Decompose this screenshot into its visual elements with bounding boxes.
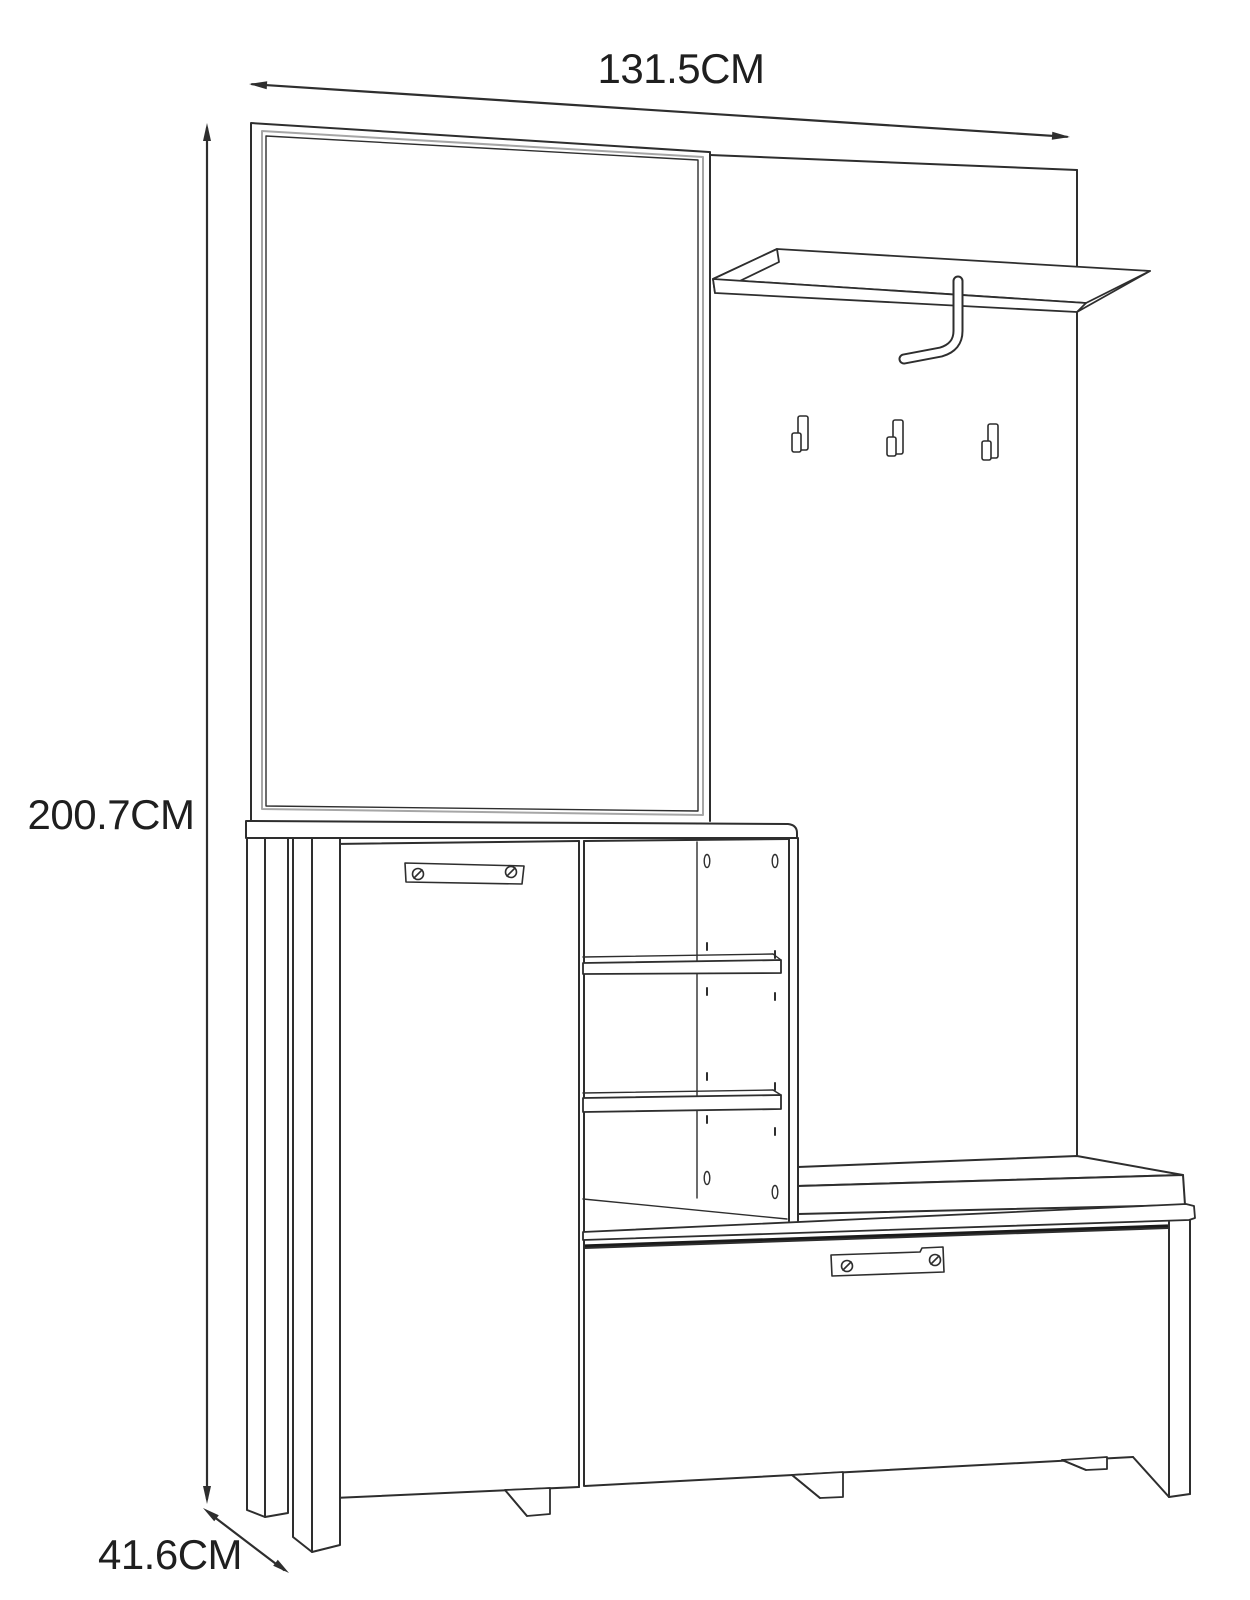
side-frame-right (1133, 1220, 1190, 1497)
compartment-shelf-lower (583, 1090, 781, 1112)
open-shelf-unit (583, 838, 798, 1221)
door-handle (405, 863, 524, 884)
wall-hook-3 (982, 424, 998, 460)
bench-seat (798, 1156, 1185, 1214)
mirror-panel (251, 123, 709, 821)
peg-holes-back (704, 855, 710, 1185)
leg-front-left (293, 838, 340, 1552)
foot-under-drawer (792, 1472, 843, 1498)
leg-back-left (247, 838, 288, 1517)
dimension-diagram: 131.5CM 200.7CM 41.6CM (0, 0, 1250, 1600)
width-dimension-label: 131.5CM (481, 48, 881, 90)
peg-holes-front (772, 855, 778, 1199)
compartment-shelf-upper (583, 954, 781, 974)
height-dimension-label: 200.7CM (0, 794, 222, 836)
wall-hook-2 (887, 420, 903, 456)
drawer-handle (831, 1247, 944, 1276)
cabinet-door (333, 841, 584, 1498)
wall-hook-1 (792, 416, 808, 452)
foot-back-right (1062, 1457, 1107, 1470)
cabinet-top (246, 821, 797, 838)
depth-dimension-label: 41.6CM (20, 1534, 320, 1576)
foot-under-door (505, 1488, 550, 1516)
coat-shelf (713, 249, 1150, 312)
